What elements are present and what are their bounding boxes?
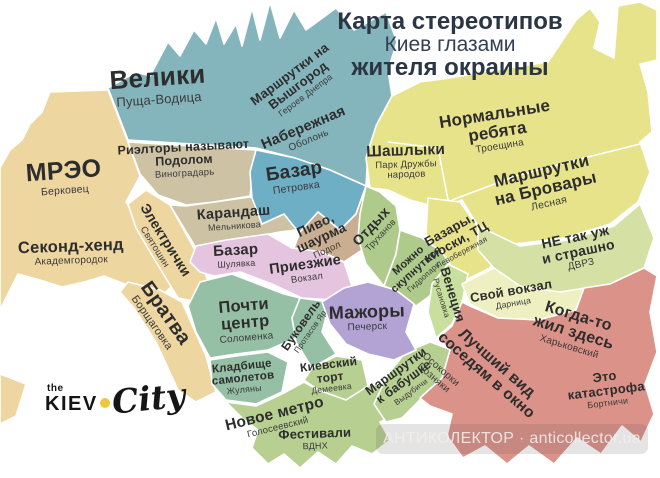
- map-title-line2: Киев глазами: [337, 34, 562, 55]
- logo-yellow-dot-icon: [100, 398, 110, 408]
- map-title: Карта стереотипов Киев глазами жителя ок…: [337, 10, 562, 80]
- region-shape-mazhory: [322, 282, 416, 360]
- map-title-line1: Карта стереотипов: [337, 10, 562, 34]
- map-title-line3: жителя окраины: [337, 56, 562, 80]
- kiev-city-logo: the KIEV City: [45, 384, 185, 415]
- logo-city-script-text: City: [110, 378, 186, 418]
- region-shape-left-sliver: [0, 374, 26, 424]
- watermark: АНТИКОЛЕКТОР · anticollector.ua: [376, 424, 648, 454]
- logo-kiev-block: the KIEV: [45, 384, 98, 414]
- logo-kiev-text: KIEV: [45, 394, 98, 414]
- watermark-text: АНТИКОЛЕКТОР · anticollector.ua: [383, 430, 641, 448]
- kyiv-stereotype-map: Велики Пуща-Водица Маршрутки на Вышгород…: [0, 0, 660, 478]
